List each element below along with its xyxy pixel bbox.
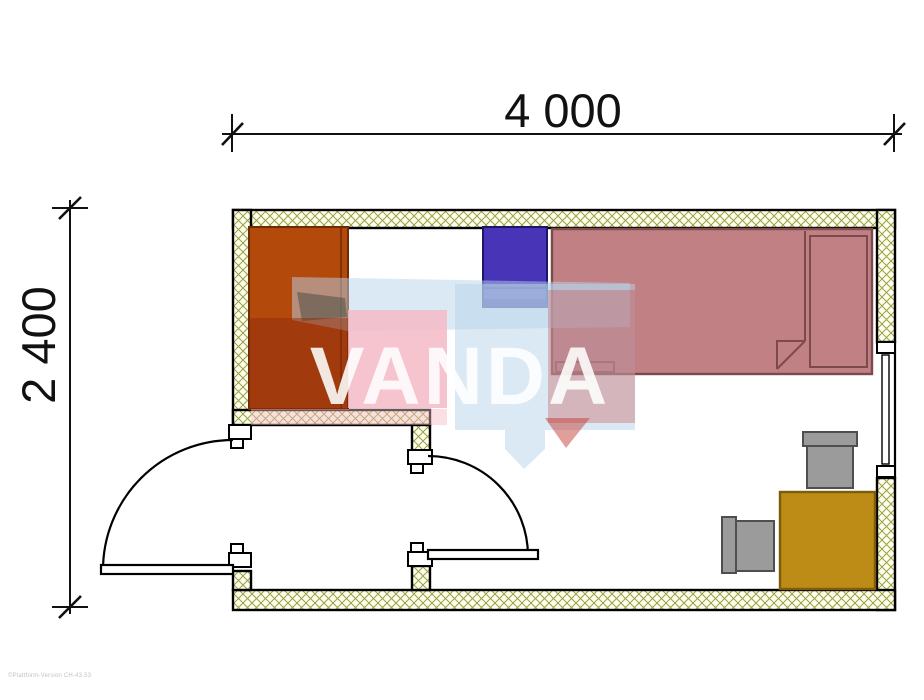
door-leaf-left <box>101 565 233 574</box>
chair-left <box>722 517 774 573</box>
watermark-text: VANDA <box>310 331 610 422</box>
wall-stub-lower-left <box>233 571 251 590</box>
dimension-width-label: 4 000 <box>504 84 622 137</box>
dimension-height-label: 2 400 <box>12 286 65 404</box>
fine-print: ©Plattform-Version CH-43.53 <box>8 672 92 679</box>
chair-top <box>803 432 857 488</box>
wall-right-upper <box>877 210 895 342</box>
wall-bottom <box>233 590 895 610</box>
desk <box>780 492 875 589</box>
floor-plan-drawing: VANDA 4 000 2 400 ©Plattform-Version CH-… <box>0 0 924 700</box>
chair-top-backrest <box>803 432 857 446</box>
window-frame-bottom <box>877 466 895 477</box>
window-frame-top <box>877 342 895 353</box>
chair-left-seat <box>736 521 774 571</box>
chair-top-seat <box>807 446 853 488</box>
wall-top <box>233 210 895 228</box>
floor-plan-canvas: VANDA 4 000 2 400 ©Plattform-Version CH-… <box>0 0 924 700</box>
window <box>876 341 896 479</box>
chair-left-backrest <box>722 517 736 573</box>
window-glazing <box>882 355 889 464</box>
door-leaf-right <box>428 550 538 559</box>
wall-stub-lower-right <box>412 566 430 590</box>
bed-pillow <box>810 236 867 367</box>
